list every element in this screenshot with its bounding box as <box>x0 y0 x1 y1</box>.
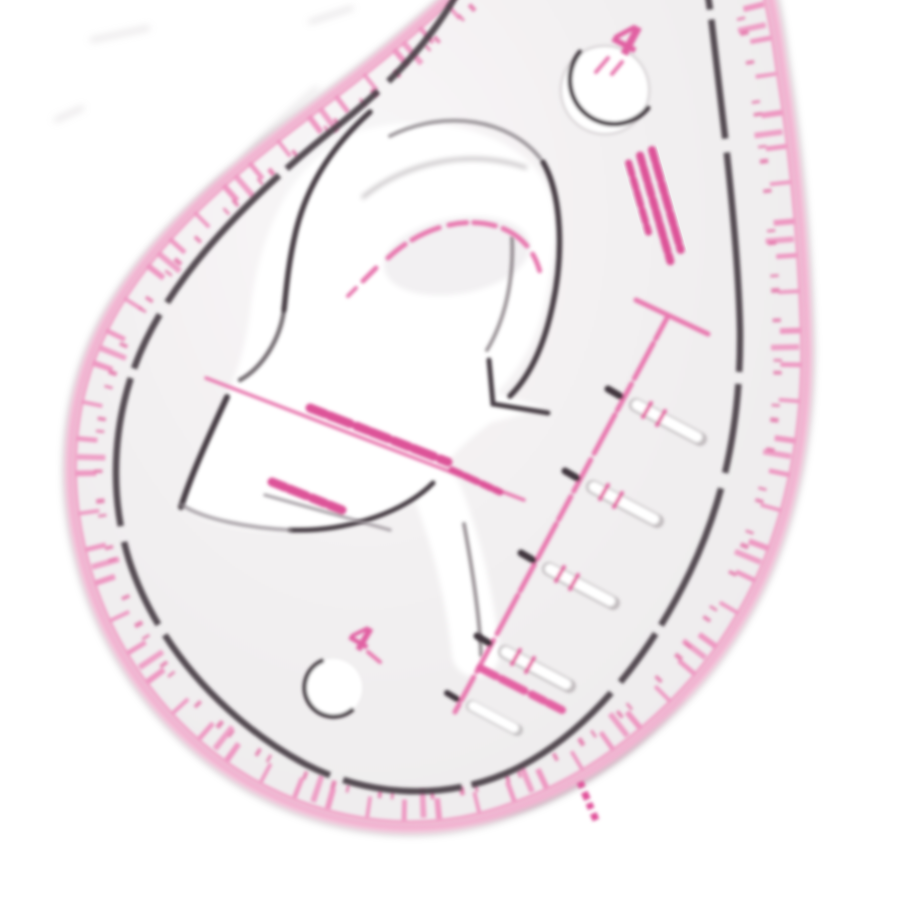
bottom-hole <box>304 659 362 717</box>
photo-stage: 4 4 <box>0 0 900 900</box>
ruler-photo: 4 4 <box>0 0 900 900</box>
